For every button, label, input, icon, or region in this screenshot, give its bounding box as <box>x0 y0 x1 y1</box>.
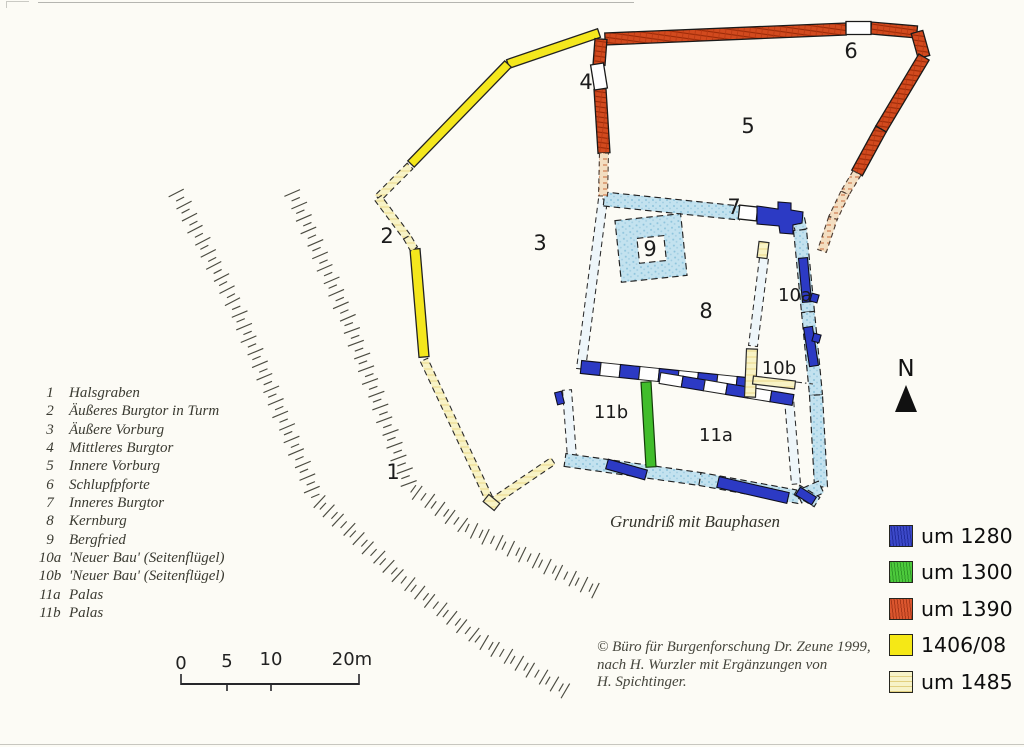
hachure-stroke <box>307 482 315 485</box>
hachure-stroke <box>177 201 192 209</box>
wall-segment <box>876 54 929 132</box>
credit-line: © Büro für Burgenforschung Dr. Zeune 199… <box>597 639 871 657</box>
hachure-stroke <box>515 656 524 671</box>
hachure-stroke <box>187 225 202 233</box>
wall-segment <box>408 61 511 167</box>
hachure-stroke <box>263 386 279 393</box>
hachure-stroke <box>391 568 397 575</box>
hachure-stroke <box>559 684 564 692</box>
wall-segment <box>870 22 917 38</box>
hachure-stroke <box>311 494 319 497</box>
credit-line: nach H. Wurzler mit Ergänzungen von <box>597 657 871 675</box>
hachure-stroke <box>275 406 283 409</box>
scale-num-0: 0 <box>175 653 186 674</box>
hachure-stroke <box>532 553 540 568</box>
hachure-stroke <box>219 282 227 286</box>
plan-label-kernburg: 8 <box>699 299 712 323</box>
hachure-stroke <box>496 535 503 550</box>
hachure-stroke <box>284 431 292 434</box>
hachure-stroke <box>489 642 494 650</box>
hachure-stroke <box>482 529 489 544</box>
hachure-stroke <box>524 663 529 671</box>
hachure-stroke <box>320 503 326 510</box>
hachure-stroke <box>341 521 347 528</box>
hachure-stroke <box>433 602 439 609</box>
hachure-stroke <box>387 437 395 440</box>
hachure-stroke <box>369 386 377 389</box>
wall-segment <box>641 382 656 468</box>
wall-segment <box>577 198 608 369</box>
hachure-stroke <box>444 509 449 516</box>
hachure-stroke <box>169 189 184 197</box>
wall-segment <box>591 63 608 90</box>
plan-canvas: 1 2 3 4 5 6 7 8 9 10a 10b 11a 11b N 0 <box>0 0 1024 747</box>
hachure-stroke <box>589 584 593 592</box>
wall-segment <box>749 257 769 346</box>
hachure-stroke <box>411 485 416 492</box>
scale-num-5: 5 <box>221 651 232 672</box>
hachure-stroke <box>208 257 216 261</box>
legend-label: um 1485 <box>921 670 1013 694</box>
hachure-stroke <box>502 542 506 550</box>
castle-plan-page: 1Halsgraben 2Äußeres Burgtor in Turm 3Äu… <box>0 0 1024 747</box>
wall-segment <box>841 171 861 196</box>
hachure-stroke <box>359 361 367 364</box>
wall-segment <box>563 390 577 459</box>
hachure-stroke <box>465 627 471 634</box>
wall-segment <box>829 191 849 220</box>
hachure-stroke <box>510 656 515 664</box>
hachure-stroke <box>232 311 248 318</box>
wall-segment <box>605 23 846 45</box>
hachure-stroke <box>447 611 458 624</box>
hachure-stroke <box>291 444 299 447</box>
hachure-stroke <box>401 481 417 487</box>
hachure-stroke <box>195 237 210 245</box>
hachure-stroke <box>257 373 273 380</box>
hachure-stroke <box>296 210 304 214</box>
wall-segment <box>375 163 413 201</box>
hachure-stroke <box>225 298 240 306</box>
wall-segment <box>594 89 610 154</box>
hachure-stroke <box>296 215 312 222</box>
wall-segment <box>599 153 609 196</box>
hachure-stroke <box>383 425 391 428</box>
hachure-stroke <box>555 565 563 580</box>
legend-swatch-yellow <box>889 634 913 656</box>
hachure-stroke <box>195 233 203 237</box>
hachure-stroke <box>232 306 240 309</box>
hachure-stroke <box>365 374 373 377</box>
checker-wall-cell <box>619 365 640 380</box>
hachure-stroke <box>383 560 395 572</box>
legend-row-1406-08: 1406/08 <box>889 634 1013 657</box>
hachure-stroke <box>248 348 264 355</box>
hachure-stroke <box>435 502 445 516</box>
hachure-stroke <box>401 576 407 583</box>
plan-label-innere-vorburg: 5 <box>741 114 754 138</box>
hachure-stroke <box>592 583 600 598</box>
hachure-stroke <box>527 554 531 562</box>
plan-label-schlupfpforte: 6 <box>844 39 857 63</box>
hachure-stroke <box>368 391 384 397</box>
hachure-stroke <box>182 209 190 213</box>
wall-segment <box>745 349 758 397</box>
hachure-stroke <box>414 586 425 599</box>
hachure-stroke <box>312 252 328 259</box>
plan-label-neuer-bau-b: 10b <box>762 358 796 379</box>
hachure-stroke <box>324 272 332 276</box>
hachure-stroke <box>284 436 300 443</box>
hachure-stroke <box>470 523 477 538</box>
hachure-stroke <box>176 197 184 201</box>
legend-label: um 1280 <box>921 524 1013 548</box>
plan-label-inneres-burgtor: 7 <box>727 195 740 219</box>
hachure-stroke <box>237 319 245 322</box>
hachure-stroke <box>370 549 376 556</box>
hachure-stroke <box>362 379 378 385</box>
hachure-stroke <box>544 559 552 574</box>
hachure-stroke <box>355 348 363 351</box>
wall-segment <box>404 235 418 251</box>
hachure-stroke <box>300 469 308 472</box>
hachure-stroke <box>308 240 324 247</box>
hachure-stroke <box>564 572 568 580</box>
hachure-stroke <box>264 381 272 384</box>
hachure-stroke <box>324 277 340 284</box>
hachure-stroke <box>353 532 365 544</box>
plan-label-halsgraben: 1 <box>386 460 399 484</box>
hachure-stroke <box>331 512 337 519</box>
hachure-stroke <box>387 442 403 448</box>
hachure-stroke <box>376 417 392 423</box>
hachure-stroke <box>345 323 353 326</box>
plan-label-mittleres-burgtor: 4 <box>579 70 592 94</box>
legend-label: um 1390 <box>921 597 1013 621</box>
plan-label-neuer-bau-a: 10a <box>778 285 812 306</box>
hachure-stroke <box>236 323 252 330</box>
hachure-stroke <box>206 262 221 270</box>
hachure-stroke <box>295 461 311 468</box>
checker-wall-cell <box>770 391 794 406</box>
hachure-stroke <box>454 517 459 524</box>
hachure-stroke <box>308 235 316 239</box>
hachure-stroke <box>312 247 320 251</box>
hachure-stroke <box>248 344 256 347</box>
hachure-stroke <box>552 566 556 574</box>
wall-segment <box>507 29 601 69</box>
hachure-stroke <box>189 221 197 225</box>
hachure-stroke <box>380 558 386 565</box>
hachure-stroke <box>465 524 469 532</box>
hachure-stroke <box>358 366 374 372</box>
legend-swatch-blue <box>889 525 913 547</box>
wall-segment <box>818 217 838 253</box>
hachure-stroke <box>550 677 559 692</box>
scale-bar: 0 5 10 20m <box>175 649 372 691</box>
hachure-stroke <box>323 505 335 517</box>
north-arrow-icon <box>895 385 917 412</box>
hachure-stroke <box>243 331 251 334</box>
hachure-stroke <box>227 294 235 298</box>
hachure-stroke <box>490 536 494 544</box>
wall-segment <box>846 22 871 35</box>
moat-slope-hachures <box>169 189 600 698</box>
hachure-stroke <box>580 577 588 592</box>
wall-segment <box>593 39 607 66</box>
legend-swatch-red <box>889 598 913 620</box>
wall-segment <box>738 205 758 221</box>
hachure-stroke <box>480 635 489 650</box>
scale-num-10: 10 <box>260 649 283 670</box>
wall-segment <box>810 395 828 488</box>
hachure-stroke <box>372 404 388 410</box>
hachure-stroke <box>431 501 436 508</box>
hachure-stroke <box>288 449 304 456</box>
hachure-stroke <box>479 530 483 538</box>
checker-wall-cell <box>600 363 621 378</box>
hachure-stroke <box>535 670 540 678</box>
plan-caption: Grundriß mit Bauphasen <box>610 512 780 532</box>
legend-row-um-1300: um 1300 <box>889 561 1013 584</box>
hachure-stroke <box>279 419 287 422</box>
hachure-stroke <box>291 202 307 209</box>
hachure-stroke <box>351 335 359 338</box>
hachure-stroke <box>252 361 268 368</box>
hachure-stroke <box>279 424 295 431</box>
hachure-stroke <box>214 269 222 273</box>
hachure-stroke <box>499 649 504 657</box>
phase-legend: um 1280 um 1300 um 1390 1406/08 um 1485 <box>889 524 1013 707</box>
hachure-stroke <box>340 314 356 321</box>
wall-segment <box>812 333 821 343</box>
legend-label: 1406/08 <box>921 633 1006 657</box>
legend-row-um-1280: um 1280 <box>889 524 1013 547</box>
hachure-stroke <box>393 450 401 453</box>
hachure-stroke <box>443 610 449 617</box>
checker-wall-cell <box>639 367 660 382</box>
wall-segment <box>420 358 494 504</box>
hachure-stroke <box>575 578 579 586</box>
hachure-stroke <box>268 399 284 406</box>
hachure-stroke <box>284 190 300 197</box>
hachure-stroke <box>475 635 481 642</box>
hachure-stroke <box>348 340 364 346</box>
hachure-stroke <box>411 585 417 592</box>
hachure-stroke <box>319 260 327 264</box>
hachure-stroke <box>423 593 429 600</box>
hachure-stroke <box>241 336 257 343</box>
hachure-stroke <box>516 548 520 556</box>
plan-label-aeussere-vorburg: 3 <box>533 231 546 255</box>
plan-label-bergfried: 9 <box>643 237 656 261</box>
hachure-stroke <box>379 412 387 415</box>
plan-label-palas-a: 11a <box>699 425 733 446</box>
legend-row-um-1485: um 1485 <box>889 670 1013 693</box>
hachure-stroke <box>201 249 216 257</box>
legend-row-um-1390: um 1390 <box>889 597 1013 620</box>
north-arrow: N <box>895 356 917 412</box>
credit-line: H. Spichtinger. <box>597 674 871 692</box>
hachure-stroke <box>329 285 337 289</box>
hachure-stroke <box>546 677 551 685</box>
legend-swatch-pale-yellow <box>889 671 913 693</box>
hachure-stroke <box>340 310 348 314</box>
hachure-stroke <box>569 571 577 586</box>
hachure-stroke <box>252 356 260 359</box>
wall-segment <box>757 241 769 258</box>
checker-wall-cell <box>580 361 601 376</box>
hachure-stroke <box>455 618 461 625</box>
hachure-stroke <box>200 245 208 249</box>
wall-segment <box>717 477 789 504</box>
north-label: N <box>897 356 914 382</box>
hachure-stroke <box>350 531 356 538</box>
plan-label-palas-b: 11b <box>594 402 628 423</box>
hachure-stroke <box>354 353 370 359</box>
hachure-stroke <box>344 328 360 334</box>
wall-segment <box>489 458 555 507</box>
hachure-stroke <box>421 493 426 500</box>
credit-block: © Büro für Burgenforschung Dr. Zeune 199… <box>597 639 871 692</box>
legend-label: um 1300 <box>921 560 1013 584</box>
hachure-stroke <box>401 476 409 479</box>
hachure-stroke <box>301 227 317 234</box>
legend-swatch-green <box>889 561 913 583</box>
hachure-stroke <box>182 213 197 221</box>
hachure-stroke <box>259 369 267 372</box>
hachure-stroke <box>336 297 344 301</box>
wall-segment <box>410 249 429 358</box>
wall-segment <box>785 399 801 485</box>
hachure-stroke <box>214 274 229 282</box>
hachure-stroke <box>272 411 288 418</box>
hachure-stroke <box>373 399 381 402</box>
plan-label-aeusseres-burgtor: 2 <box>380 224 393 248</box>
hachure-stroke <box>383 430 399 436</box>
hachure-stroke <box>317 265 333 272</box>
hachure-stroke <box>304 486 320 493</box>
hachure-stroke <box>292 197 300 201</box>
hachure-stroke <box>333 302 349 309</box>
hachure-stroke <box>507 541 514 556</box>
hachure-stroke <box>539 560 543 568</box>
hachure-stroke <box>303 222 311 226</box>
hachure-stroke <box>268 394 276 397</box>
hachure-stroke <box>361 540 367 547</box>
hachure-stroke <box>219 286 234 294</box>
scale-num-20m: 20m <box>332 649 372 670</box>
hachure-stroke <box>295 457 303 460</box>
wall-segment <box>852 126 887 176</box>
hachure-stroke <box>300 474 316 481</box>
hachure-stroke <box>519 547 526 562</box>
hachure-stroke <box>328 289 344 296</box>
